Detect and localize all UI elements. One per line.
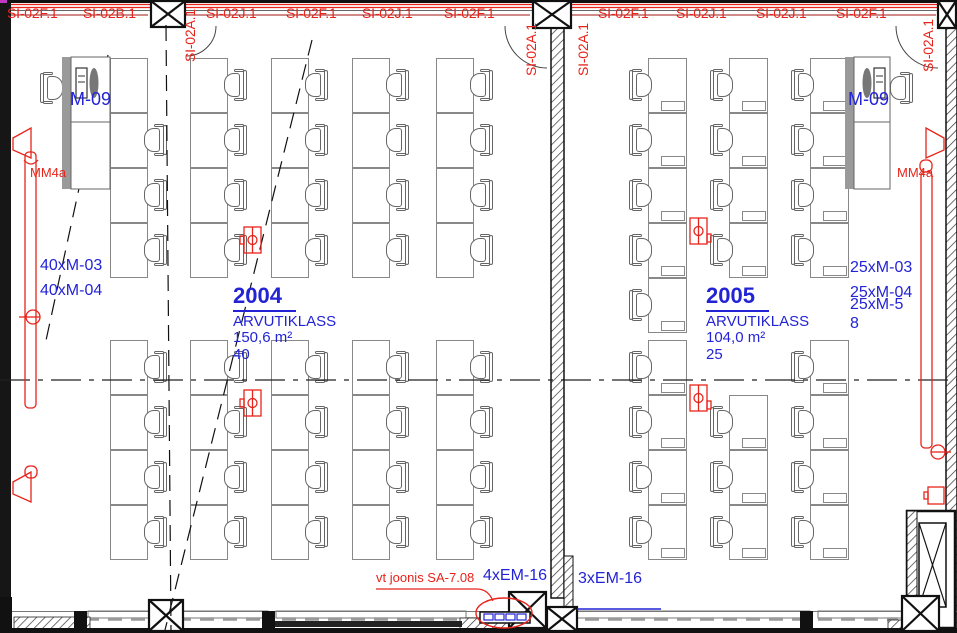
room-name: ARVUTIKLASS [706, 314, 809, 331]
room-count: 25 [706, 347, 809, 364]
cable-tray-label: SI-02A.1 [183, 9, 197, 62]
room-area: 104,0 m² [706, 330, 809, 347]
equipment-label: M-09 [70, 90, 111, 108]
room-label-2004: 2004 ARVUTIKLASS 150,6 m² 40 [233, 284, 336, 364]
equipment-label: 8 [850, 316, 859, 332]
cable-tray-label: SI-02B.1 [83, 6, 136, 20]
cable-tray-label: SI-02F.1 [444, 6, 495, 20]
room-name: ARVUTIKLASS [233, 314, 336, 331]
equipment-label: 25xM-03 [850, 260, 912, 276]
cable-tray-label: SI-02F.1 [7, 6, 58, 20]
red-note-label: MM4a [30, 166, 66, 179]
label-layer: SI-02F.1SI-02B.1SI-02A.1SI-02J.1SI-02F.1… [0, 0, 957, 633]
cable-tray-label: SI-02J.1 [206, 6, 257, 20]
room-number: 2004 [233, 284, 296, 312]
cable-tray-label: SI-02A.1 [524, 23, 538, 76]
room-area: 150,6 m² [233, 330, 336, 347]
equipment-label: 25xM-5 [850, 297, 903, 313]
cable-tray-label: SI-02A.1 [576, 23, 590, 76]
equipment-label: 40xM-04 [40, 283, 102, 299]
equipment-label: 4xEM-16 [483, 568, 547, 584]
cable-tray-label: SI-02F.1 [836, 6, 887, 20]
red-note-label: vt joonis SA-7.08 [376, 571, 474, 584]
red-note-label: MM4a [897, 166, 933, 179]
room-label-2005: 2005 ARVUTIKLASS 104,0 m² 25 [706, 284, 809, 364]
room-count: 40 [233, 347, 336, 364]
equipment-label: 3xEM-16 [578, 571, 642, 587]
equipment-label: 40xM-03 [40, 258, 102, 274]
room-number: 2005 [706, 284, 769, 312]
floor-plan: SI-02F.1SI-02B.1SI-02A.1SI-02J.1SI-02F.1… [0, 0, 957, 633]
cable-tray-label: SI-02F.1 [286, 6, 337, 20]
equipment-label: M-09 [848, 90, 889, 108]
cable-tray-label: SI-02F.1 [598, 6, 649, 20]
cable-tray-label: SI-02J.1 [362, 6, 413, 20]
cable-tray-label: SI-02J.1 [756, 6, 807, 20]
cable-tray-label: SI-02A.1 [921, 19, 935, 72]
cable-tray-label: SI-02J.1 [676, 6, 727, 20]
